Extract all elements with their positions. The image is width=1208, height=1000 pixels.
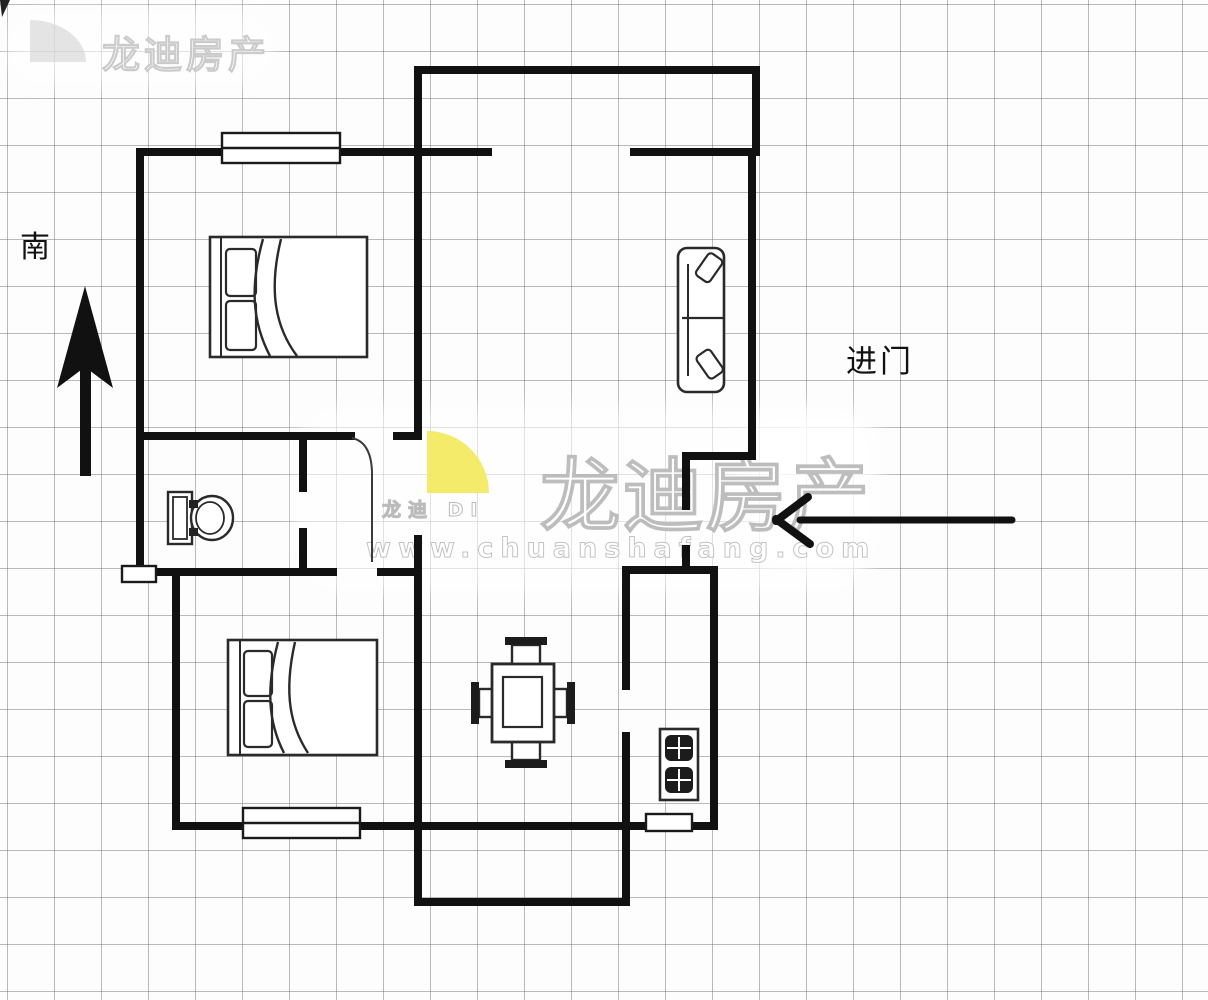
- floorplan-canvas: 龙迪房产 龙迪 DI 龙迪房产 www.chuanshafang.com: [0, 0, 1208, 1000]
- entrance-direction-arrow: [776, 497, 1012, 544]
- wall-balcony-bot-bottom: [414, 898, 630, 906]
- south-label: 南: [20, 222, 50, 266]
- wall-top-right-segment: [630, 148, 756, 156]
- wall-left-exterior: [136, 148, 144, 576]
- wall-kitchen-top: [622, 566, 718, 574]
- wall-balcony-top-left: [414, 66, 422, 156]
- wall-kitchen-right: [710, 568, 718, 830]
- stove-icon: [660, 729, 698, 800]
- wall-balcony-top-right: [752, 66, 760, 156]
- wall-bath-bottom: [136, 568, 337, 576]
- toilet-icon: [168, 492, 233, 544]
- wall-balcony-top-top: [414, 66, 760, 74]
- wall-bath-right-a: [299, 432, 307, 492]
- wall-bedroom1-bottom-a: [136, 432, 355, 440]
- double-bed-icon-bedroom2: [228, 640, 377, 755]
- wall-kitchen-left-a: [622, 568, 630, 690]
- wall-kitchen-left-b: [622, 732, 630, 830]
- wall-bedroom1-right: [414, 148, 422, 440]
- window-bedroom2: [243, 808, 360, 838]
- south-direction-arrow: [57, 286, 113, 476]
- wall-balcony-bot-left: [414, 822, 422, 906]
- wall-bedroom2-left: [172, 568, 180, 830]
- dining-table-icon: [471, 637, 575, 768]
- floorplan-drawing: [0, 0, 1208, 1000]
- wall-entry-horizontal: [682, 452, 756, 460]
- sofa-icon: [678, 248, 724, 392]
- wall-bedroom2-right: [414, 568, 422, 830]
- window-bedroom1: [222, 133, 340, 163]
- window-bath-vent: [122, 566, 156, 582]
- wall-entry-vertical-b: [682, 545, 690, 574]
- wall-living-right: [748, 148, 756, 460]
- windows: [122, 133, 692, 838]
- wall-balcony-bot-right: [622, 822, 630, 906]
- door-arc-bedroom1: [352, 438, 372, 562]
- window-kitchen: [646, 814, 692, 831]
- wall-bedroom1-bottom-b: [393, 432, 422, 440]
- double-bed-icon-bedroom1: [210, 237, 367, 357]
- scan-artifact: [0, 0, 10, 17]
- wall-entry-vertical-a: [682, 452, 690, 510]
- entrance-label: 进门: [846, 336, 914, 381]
